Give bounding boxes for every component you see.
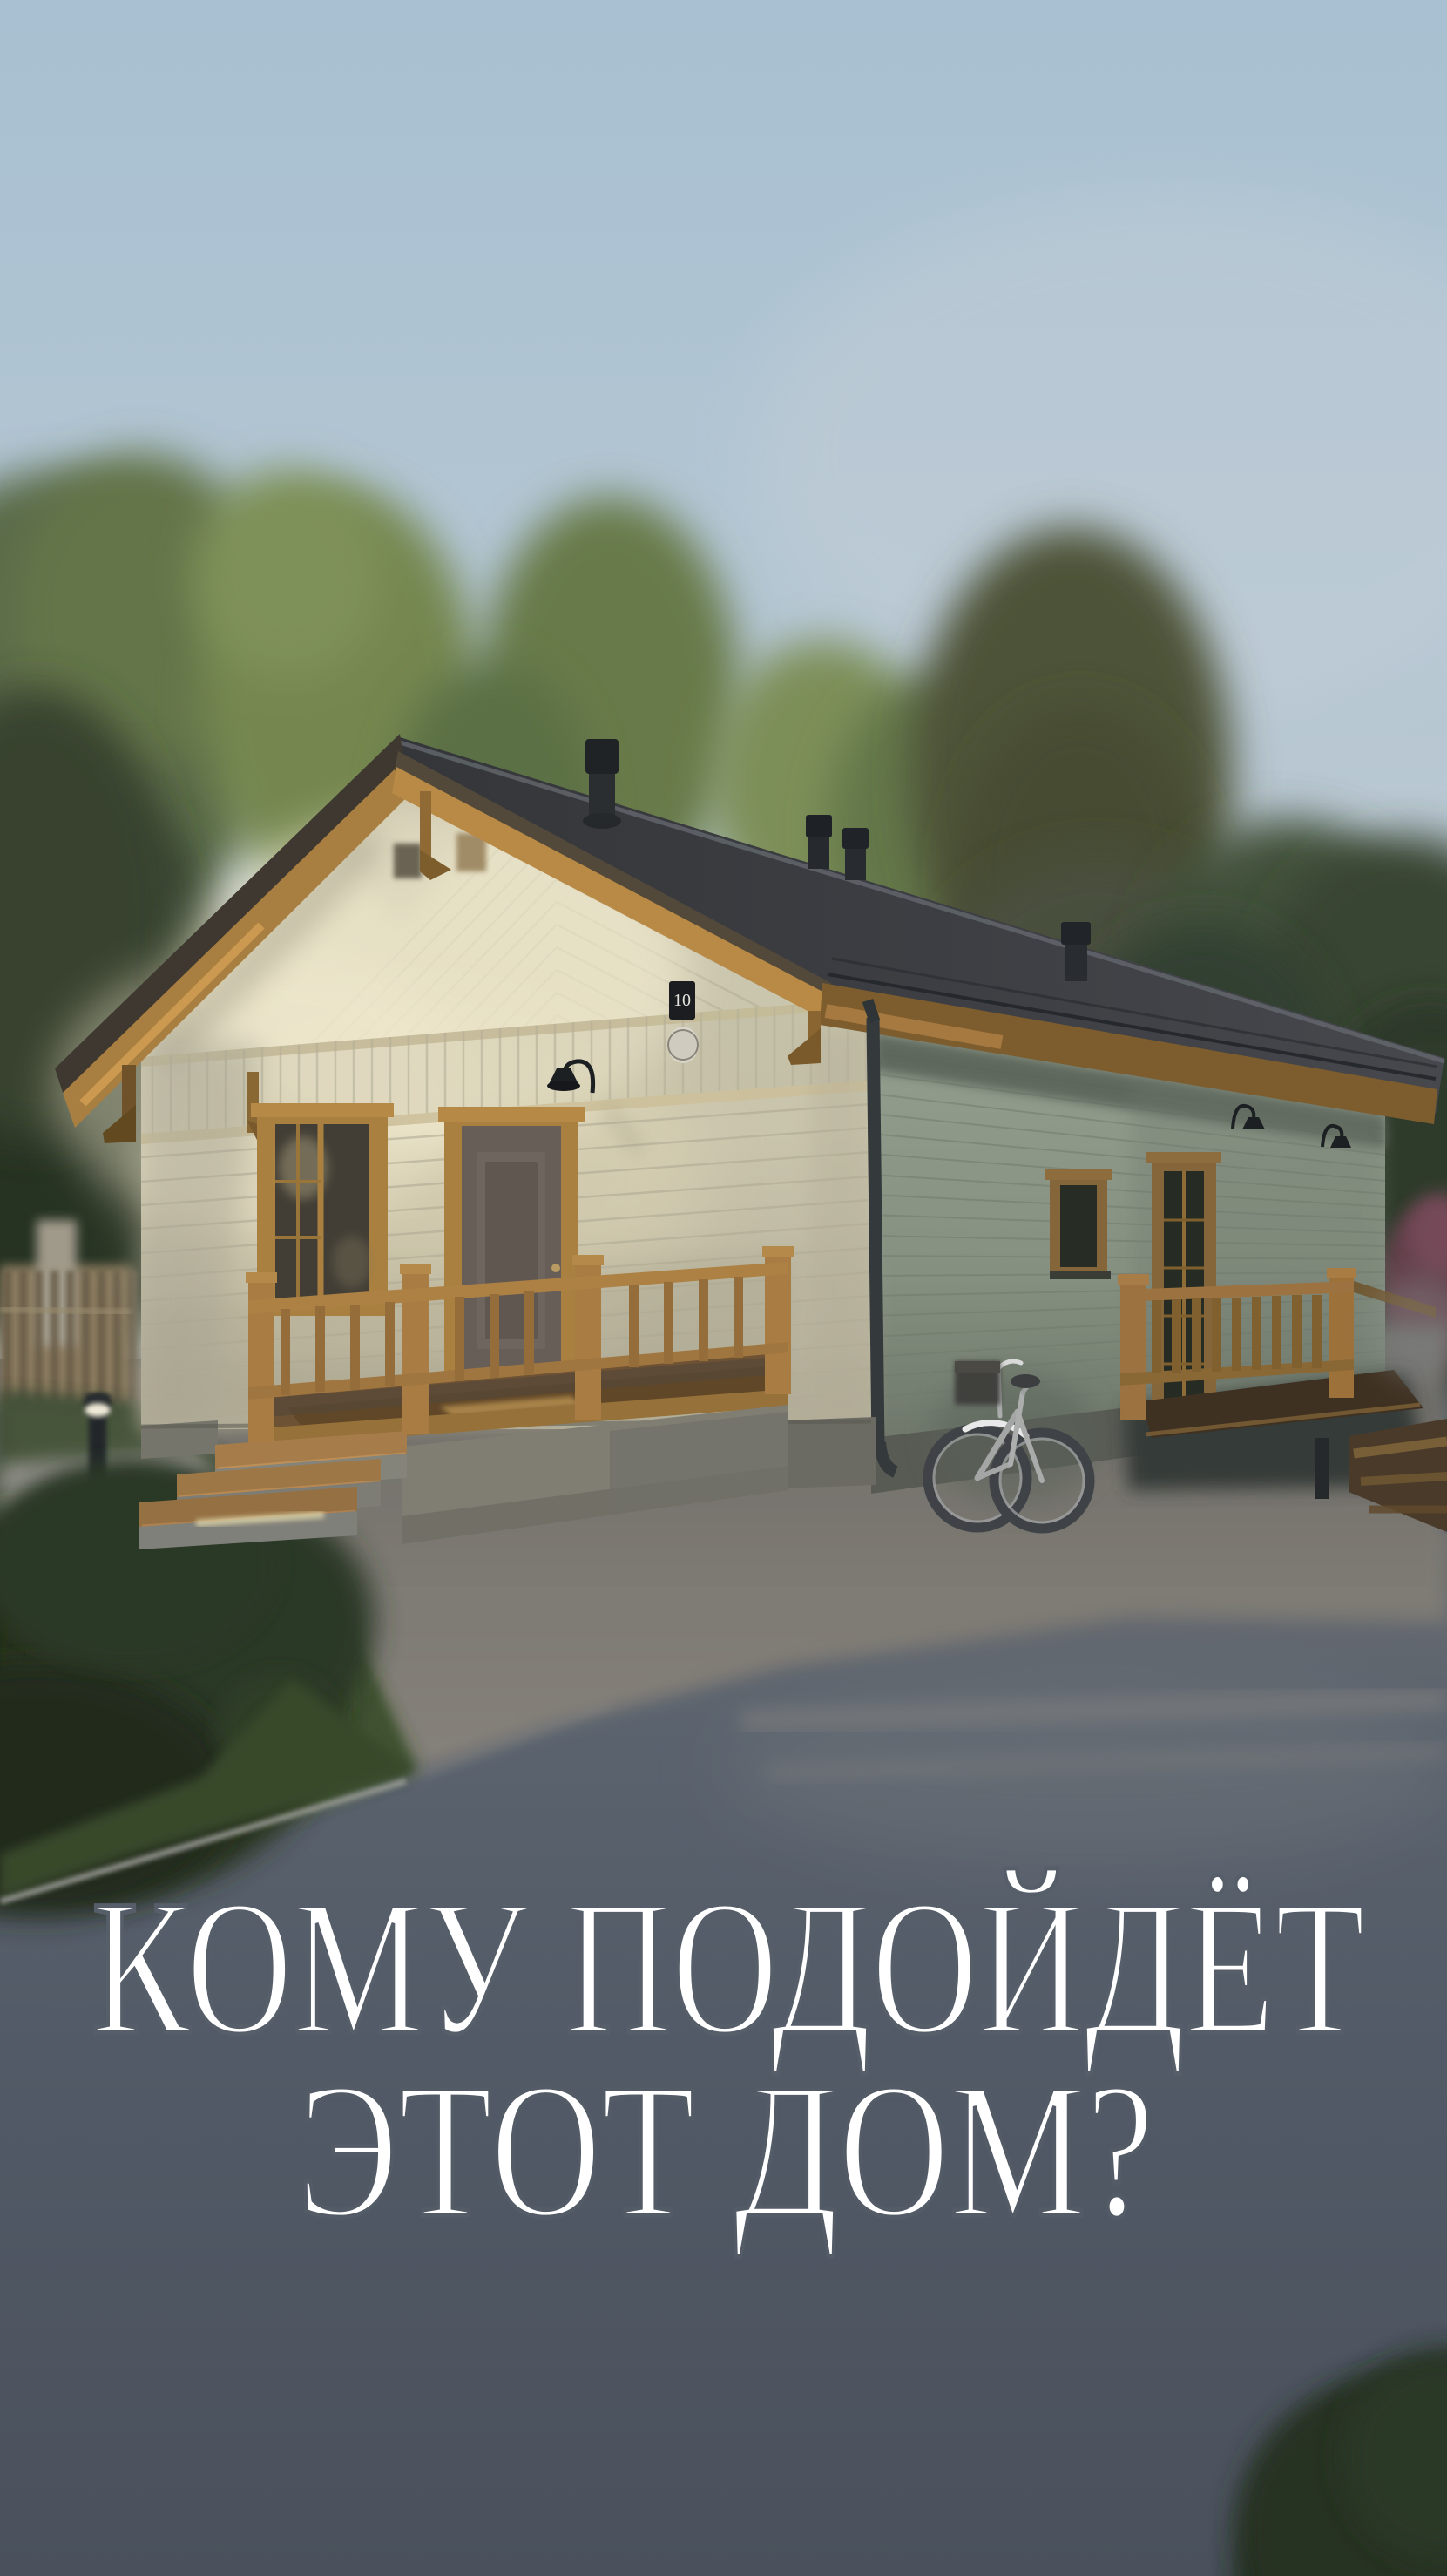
svg-text:10: 10: [673, 991, 691, 1010]
svg-text:ЭТОТ ДОМ?: ЭТОТ ДОМ?: [297, 2044, 1154, 2258]
